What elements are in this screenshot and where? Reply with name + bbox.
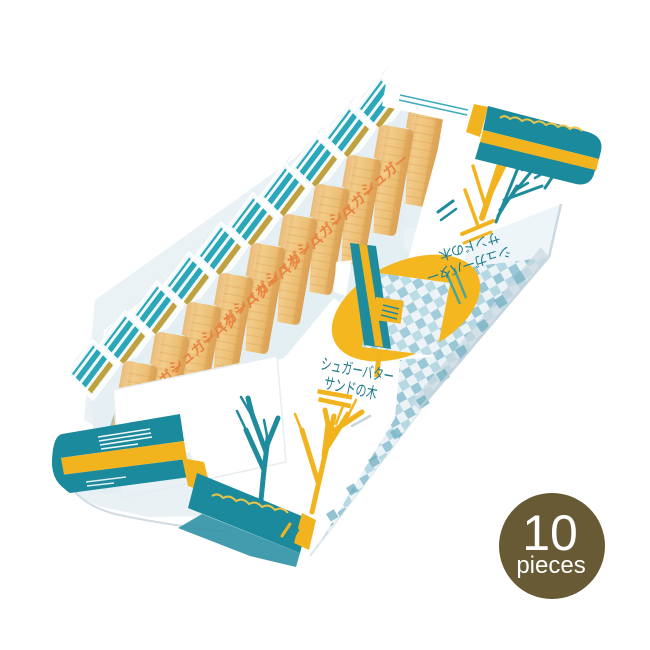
svg-text:pieces: pieces [516,552,585,579]
